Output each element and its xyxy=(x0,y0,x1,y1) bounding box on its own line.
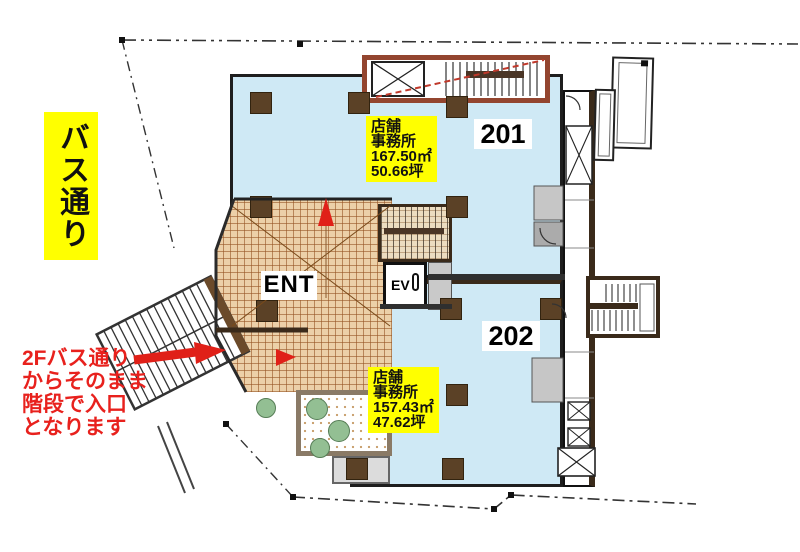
plant-icon xyxy=(306,398,328,420)
column xyxy=(442,458,464,480)
unit-202-tsubo: 47.62坪 xyxy=(373,415,434,430)
column xyxy=(446,196,468,218)
unit-202-sqm: 157.43㎡ xyxy=(373,400,434,415)
street-label: バス通り xyxy=(44,112,98,260)
service-corridor xyxy=(563,90,595,487)
column xyxy=(540,298,562,320)
column xyxy=(256,300,278,322)
unit-201-area-label: 店舗 事務所 167.50㎡ 50.66坪 xyxy=(366,116,437,182)
column xyxy=(250,92,272,114)
entry-note: 2Fバス通り からそのまま 階段で入口 となります xyxy=(22,347,148,439)
plant-icon xyxy=(328,420,350,442)
column xyxy=(440,298,462,320)
internal-staircase xyxy=(378,204,452,262)
column xyxy=(346,458,368,480)
column xyxy=(446,96,468,118)
unit-201-sqm: 167.50㎡ xyxy=(371,149,432,164)
elevator-label: EV xyxy=(391,277,410,293)
top-right-structures xyxy=(594,57,653,160)
column xyxy=(250,196,272,218)
column xyxy=(348,92,370,114)
column xyxy=(446,384,468,406)
elevator-shaft: EV xyxy=(383,262,427,308)
unit-201-tsubo: 50.66坪 xyxy=(371,164,432,179)
unit-202-use2: 事務所 xyxy=(373,385,434,400)
entry-note-line: となります xyxy=(22,416,148,439)
plant-icon xyxy=(310,438,330,458)
unit-202-number: 202 xyxy=(482,321,540,351)
entry-note-line: 階段で入口 xyxy=(22,393,148,416)
unit-201-use2: 事務所 xyxy=(371,134,432,149)
unit-201-number: 201 xyxy=(474,119,532,149)
unit-201-use: 店舗 xyxy=(371,119,432,134)
entry-note-line: 2Fバス通り xyxy=(22,347,148,370)
unit-202-area-label: 店舗 事務所 157.43㎡ 47.62坪 xyxy=(368,367,439,433)
entrance-label: ENT xyxy=(261,271,317,300)
entry-note-line: からそのまま xyxy=(22,370,148,393)
right-exterior-staircase xyxy=(588,278,658,336)
plant-icon xyxy=(256,398,276,418)
floor-plan-canvas: EV xyxy=(0,0,800,552)
unit-202-use: 店舗 xyxy=(373,370,434,385)
elevator-door-icon xyxy=(412,273,419,291)
road-edge-lines xyxy=(158,422,194,493)
